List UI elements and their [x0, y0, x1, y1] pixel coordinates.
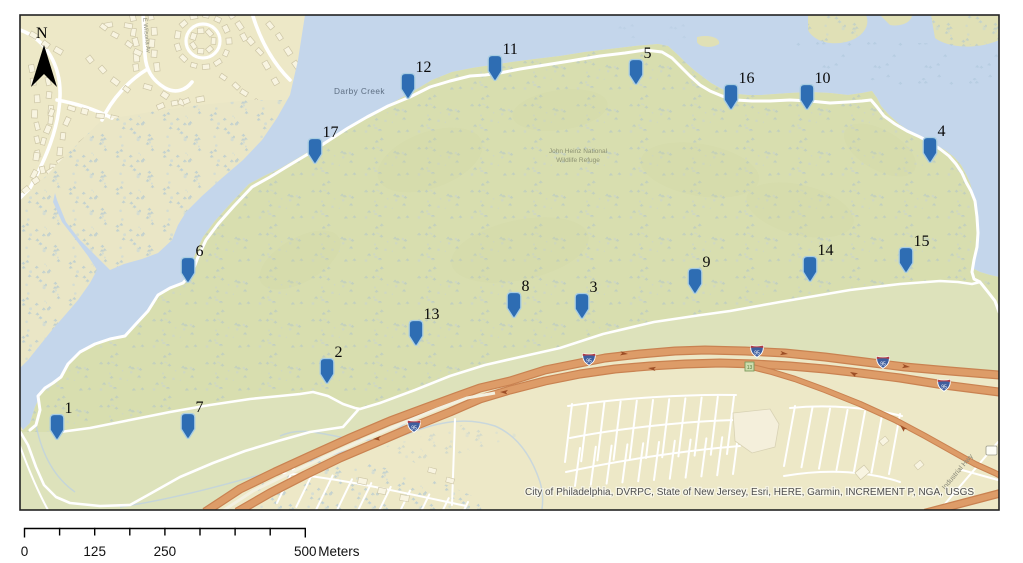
- svg-text:125: 125: [83, 544, 106, 559]
- svg-text:N: N: [36, 25, 48, 42]
- svg-text:8: 8: [522, 278, 530, 295]
- svg-text:95: 95: [754, 351, 760, 357]
- svg-text:6: 6: [196, 243, 204, 260]
- svg-text:13: 13: [424, 306, 440, 323]
- svg-text:5: 5: [644, 45, 652, 62]
- svg-text:500: 500: [294, 544, 317, 559]
- svg-text:95: 95: [411, 426, 417, 432]
- svg-text:7: 7: [196, 399, 204, 416]
- svg-text:4: 4: [938, 123, 946, 140]
- svg-text:John Heinz National: John Heinz National: [549, 148, 608, 155]
- svg-text:17: 17: [323, 124, 339, 141]
- svg-text:14: 14: [818, 242, 834, 259]
- svg-text:3: 3: [590, 279, 598, 296]
- svg-text:Meters: Meters: [318, 544, 360, 559]
- svg-text:Darby Creek: Darby Creek: [334, 86, 385, 96]
- svg-text:95: 95: [586, 359, 592, 365]
- svg-text:95: 95: [880, 362, 886, 368]
- svg-text:2: 2: [335, 344, 343, 361]
- svg-text:0: 0: [21, 544, 29, 559]
- svg-text:250: 250: [154, 544, 177, 559]
- svg-text:1: 1: [65, 400, 73, 417]
- svg-text:9: 9: [703, 254, 711, 271]
- svg-text:10: 10: [815, 70, 831, 87]
- svg-text:16: 16: [739, 70, 755, 87]
- svg-text:12: 12: [416, 59, 432, 76]
- svg-text:11: 11: [503, 41, 518, 58]
- svg-text:95: 95: [941, 385, 947, 391]
- svg-text:13: 13: [747, 365, 753, 371]
- svg-text:15: 15: [914, 233, 930, 250]
- svg-text:Wildlife Refuge: Wildlife Refuge: [556, 157, 600, 164]
- svg-text:City of Philadelphia, DVRPC, S: City of Philadelphia, DVRPC, State of Ne…: [525, 487, 974, 498]
